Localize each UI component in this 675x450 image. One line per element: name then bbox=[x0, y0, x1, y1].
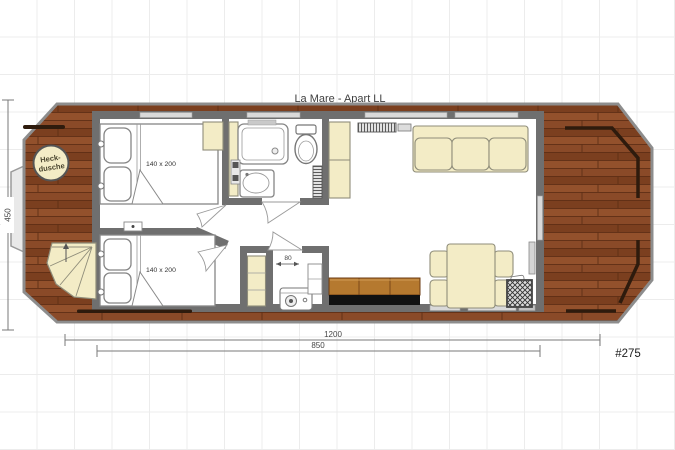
wall-bathroom-right bbox=[322, 119, 329, 205]
wall-lamp bbox=[98, 141, 104, 147]
toilet-cistern bbox=[296, 125, 316, 134]
shower-tray bbox=[238, 124, 288, 164]
shower-rail bbox=[248, 120, 276, 125]
window bbox=[140, 113, 192, 118]
kitchen-counter bbox=[329, 278, 420, 295]
wall-bathroom-bottom-a bbox=[222, 198, 262, 205]
window bbox=[247, 113, 300, 118]
dim-label-cabin: 850 bbox=[311, 341, 325, 350]
dim-label-width: 450 bbox=[4, 208, 13, 222]
wall-lamp bbox=[98, 251, 104, 257]
radiator bbox=[358, 123, 396, 132]
washer-drum-center bbox=[289, 299, 293, 303]
floor-plan-drawing: La Mare - Apart LL bbox=[0, 0, 675, 450]
floor-plan-page: La Mare - Apart LL bbox=[0, 0, 675, 450]
radiator-valve bbox=[398, 124, 411, 131]
pillow bbox=[104, 273, 131, 303]
dim-label-overall: 1200 bbox=[324, 330, 342, 339]
wall-techroom-top-b bbox=[302, 246, 322, 253]
sofa-cushion bbox=[452, 138, 489, 170]
towel-radiator bbox=[313, 166, 322, 198]
faucet bbox=[245, 173, 248, 176]
wall-techroom-right bbox=[322, 246, 329, 304]
bed-size-label: 140 x 200 bbox=[146, 161, 176, 168]
entrance-door bbox=[538, 196, 543, 240]
bedroom-2: 140 x 200 bbox=[98, 222, 227, 306]
bath-cabinet-item bbox=[233, 162, 239, 168]
kitchen bbox=[329, 278, 420, 305]
wall-heater bbox=[529, 242, 535, 274]
wall-bathroom-bottom-b bbox=[300, 198, 329, 205]
grab-rail bbox=[77, 310, 192, 314]
wall-lamp bbox=[98, 183, 104, 189]
closet-unit bbox=[248, 256, 266, 306]
plan-number: #275 bbox=[615, 348, 641, 360]
pellet-stove bbox=[507, 280, 532, 307]
wardrobe-column bbox=[229, 122, 238, 196]
bath-cabinet-item bbox=[233, 175, 239, 181]
window bbox=[455, 113, 518, 118]
pillow bbox=[104, 128, 131, 163]
wall-closet-left bbox=[240, 246, 247, 304]
wall-closet-right bbox=[266, 246, 273, 304]
pillow bbox=[104, 167, 131, 201]
wardrobe bbox=[203, 122, 223, 150]
kitchen-cabinets bbox=[329, 295, 420, 305]
bed-size-label: 140 x 200 bbox=[146, 267, 176, 274]
sofa-cushion bbox=[489, 138, 526, 170]
dining-table bbox=[447, 244, 495, 308]
dim-label-techroom-width: 80 bbox=[284, 255, 292, 262]
pillow bbox=[104, 239, 131, 270]
dining-chair bbox=[430, 251, 449, 277]
shower-drain bbox=[272, 148, 278, 154]
nightstand-knob bbox=[132, 225, 135, 228]
dining-chair bbox=[494, 251, 513, 277]
wall-lamp bbox=[98, 289, 104, 295]
window bbox=[365, 113, 447, 118]
sofa-cushion bbox=[415, 138, 452, 170]
dining-chair bbox=[430, 280, 449, 306]
grab-rail bbox=[23, 125, 65, 129]
